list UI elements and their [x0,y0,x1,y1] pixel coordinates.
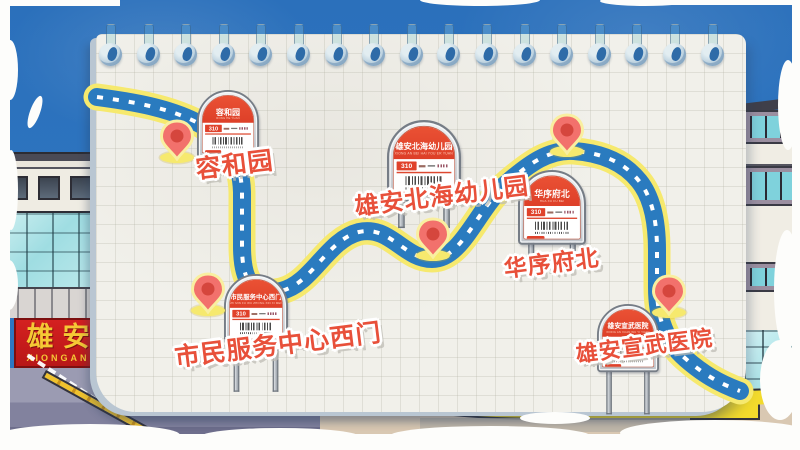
stop-pinyin: XIONG AN BEI HAI YOU ER YUAN [395,153,453,156]
timetable-barcode [213,137,244,144]
binding-ring [99,24,123,70]
stop-pinyin: RONG HE YUAN [216,117,240,120]
bus-stop-sign: 容和园 RONG HE YUAN 310 [197,90,259,158]
window [70,176,92,200]
ring-ball [550,43,573,66]
binding-ring [701,24,725,70]
ring-ball [325,43,348,66]
binding-ring [550,24,574,70]
ring-ball [437,43,460,66]
ring-ball [174,43,197,66]
binding-ring [625,24,649,70]
timetable-barcode [240,323,272,331]
map-pin-xiong-an-xuan-wu-yi-yuan [652,274,686,318]
binding-ring [437,24,461,70]
stop-name: 雄安北海幼儿园 [396,143,453,151]
binding-ring [137,24,161,70]
binding-ring [287,24,311,70]
ring-ball [287,43,310,66]
bus-stop-sign: 华序府北 HUA XU FU BEI 310 [518,170,586,245]
window [38,176,60,200]
stop-pinyin: HUA XU FU BEI [540,200,564,203]
illustration-canvas: 雄安 XIONGAN [0,0,800,450]
window-row [750,172,794,200]
route-number-badge: 310 [205,125,222,132]
pin-icon [652,274,686,316]
binding-ring [588,24,612,70]
binding-ring [513,24,537,70]
binding-ring [400,24,424,70]
binding-ring [174,24,198,70]
ring-ball [475,43,498,66]
pin-icon [550,113,584,155]
binding-ring [325,24,349,70]
ring-ball [588,43,611,66]
ring-ball [99,43,122,66]
stop-name: 雄安宣武医院 [608,323,649,330]
stop-name: 容和园 [216,108,240,116]
pin-icon [416,217,450,259]
route-number-badge: 310 [527,208,545,216]
pin-icon [160,119,194,161]
route-number-badge: 310 [397,161,417,170]
ring-ball [362,43,385,66]
binding-ring [249,24,273,70]
route-number-badge: 310 [232,310,249,318]
ring-ball [249,43,272,66]
ring-ball [137,43,160,66]
map-pin-shi-min-fu-wu-zhong-xin-xi-men [191,272,225,316]
ring-ball [400,43,423,66]
timetable-barcode [535,222,569,230]
xiongan-sign-chinese: 雄安 [18,324,99,351]
ring-ball [663,43,686,66]
pin-icon [191,272,225,314]
binding-ring [663,24,687,70]
binding-ring [212,24,236,70]
bus-stop-rong-he-yuan: 容和园 RONG HE YUAN 310 [197,90,297,200]
map-pin-xiong-an-bei-hai-you-er-yuan [416,217,450,261]
map-pin-rong-he-yuan [160,119,194,163]
ring-ball [513,43,536,66]
ring-ball [625,43,648,66]
stop-name: 市民服务中心西门 [230,294,281,300]
binding-ring [475,24,499,70]
sign-post [606,370,612,415]
stop-pinyin: SHI MIN FU WU ZHONG XIN XI MEN [229,302,283,305]
stop-name: 华序府北 [534,190,569,199]
sign-post [644,370,650,415]
ring-ball [701,43,724,66]
map-pin-hua-xu-fu-bei [550,113,584,157]
binding-ring [362,24,386,70]
xiongan-landmark-sign: 雄安 XIONGAN [14,318,102,368]
ring-ball [212,43,235,66]
